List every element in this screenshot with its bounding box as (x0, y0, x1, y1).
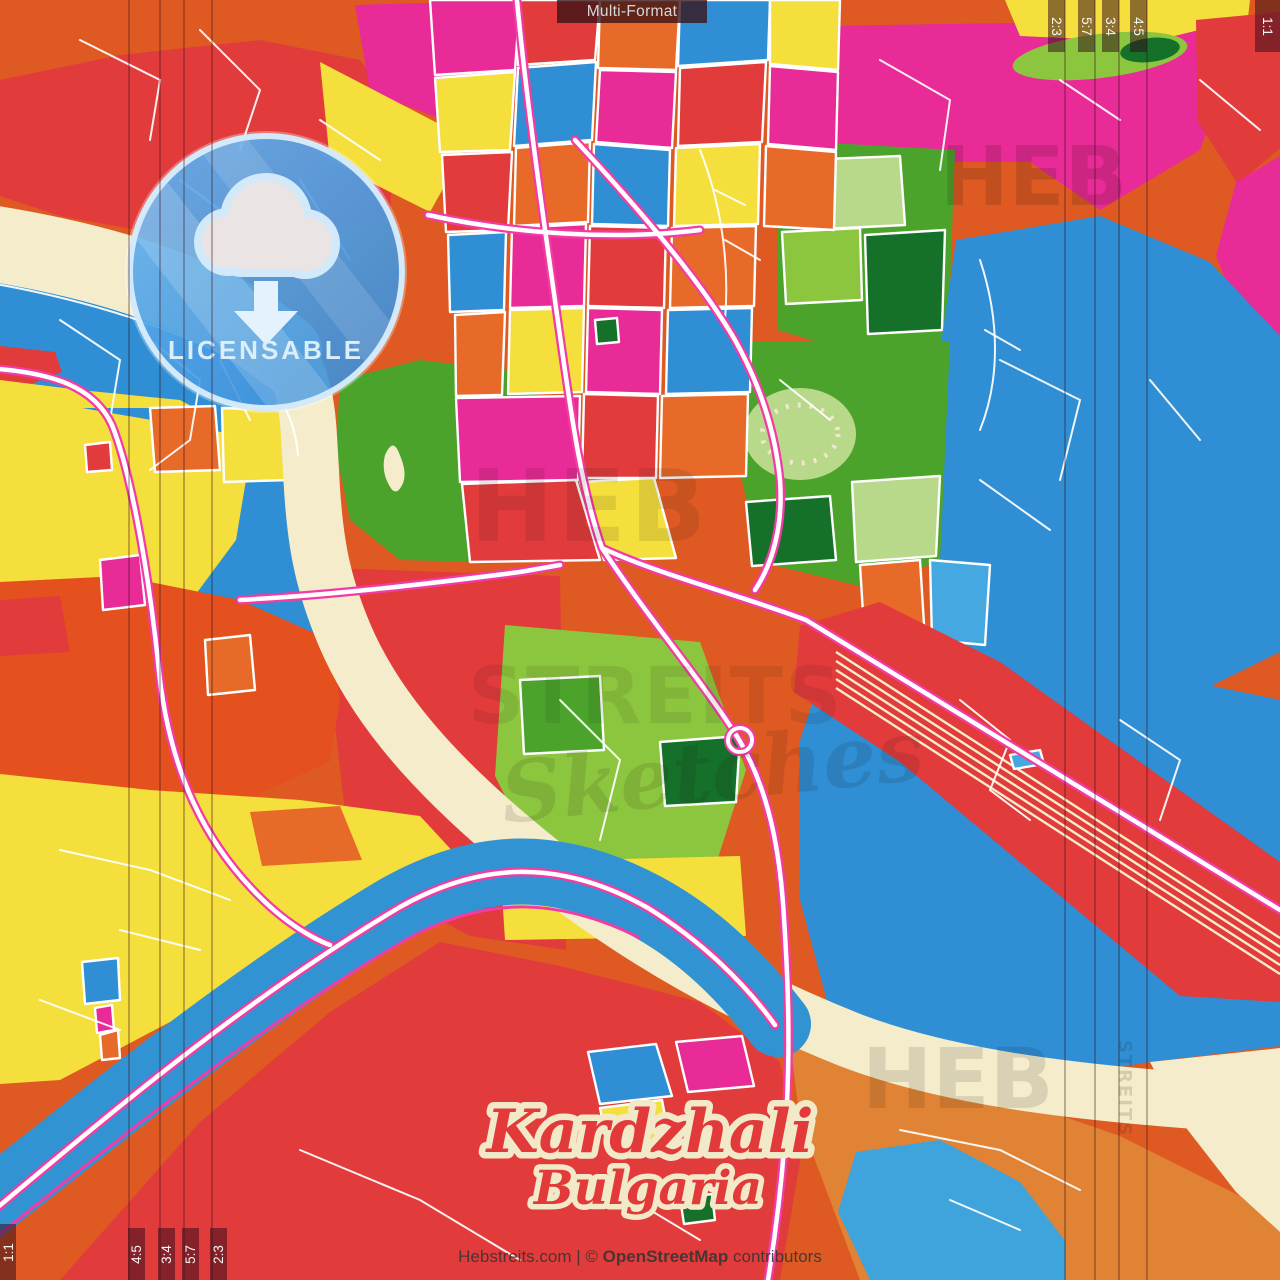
ratio-label: 3:4 (1103, 17, 1118, 36)
ratio-bar-5-7: 5:7 (1078, 0, 1095, 52)
badge-label: LICENSABLE (133, 335, 399, 366)
attribution-prefix: Hebstreits.com | © (458, 1247, 602, 1266)
ratio-bar-4-5: 4:5 (1130, 0, 1147, 52)
ratio-bar-1-1-top-right: 1:1 (1255, 0, 1280, 52)
attribution-bar: Hebstreits.com | © OpenStreetMap contrib… (0, 1247, 1280, 1267)
poster-stage: HEB STREITS Sketches HEB HEB STREITS (0, 0, 1280, 1280)
ratio-bar-3-4: 3:4 (1102, 0, 1119, 52)
ratio-label: 2:3 (1049, 17, 1064, 36)
ratio-label: 1:1 (1260, 17, 1275, 36)
ratio-label: 5:7 (1079, 17, 1094, 36)
format-label: Multi-Format (557, 0, 707, 23)
cloud-download-icon (133, 153, 399, 353)
ratio-bar-2-3: 2:3 (1048, 0, 1065, 52)
licensable-badge: LICENSABLE (127, 133, 405, 411)
attribution-suffix: contributors (728, 1247, 822, 1266)
attribution-brand: OpenStreetMap (603, 1247, 729, 1266)
ratio-label: 4:5 (1131, 17, 1146, 36)
